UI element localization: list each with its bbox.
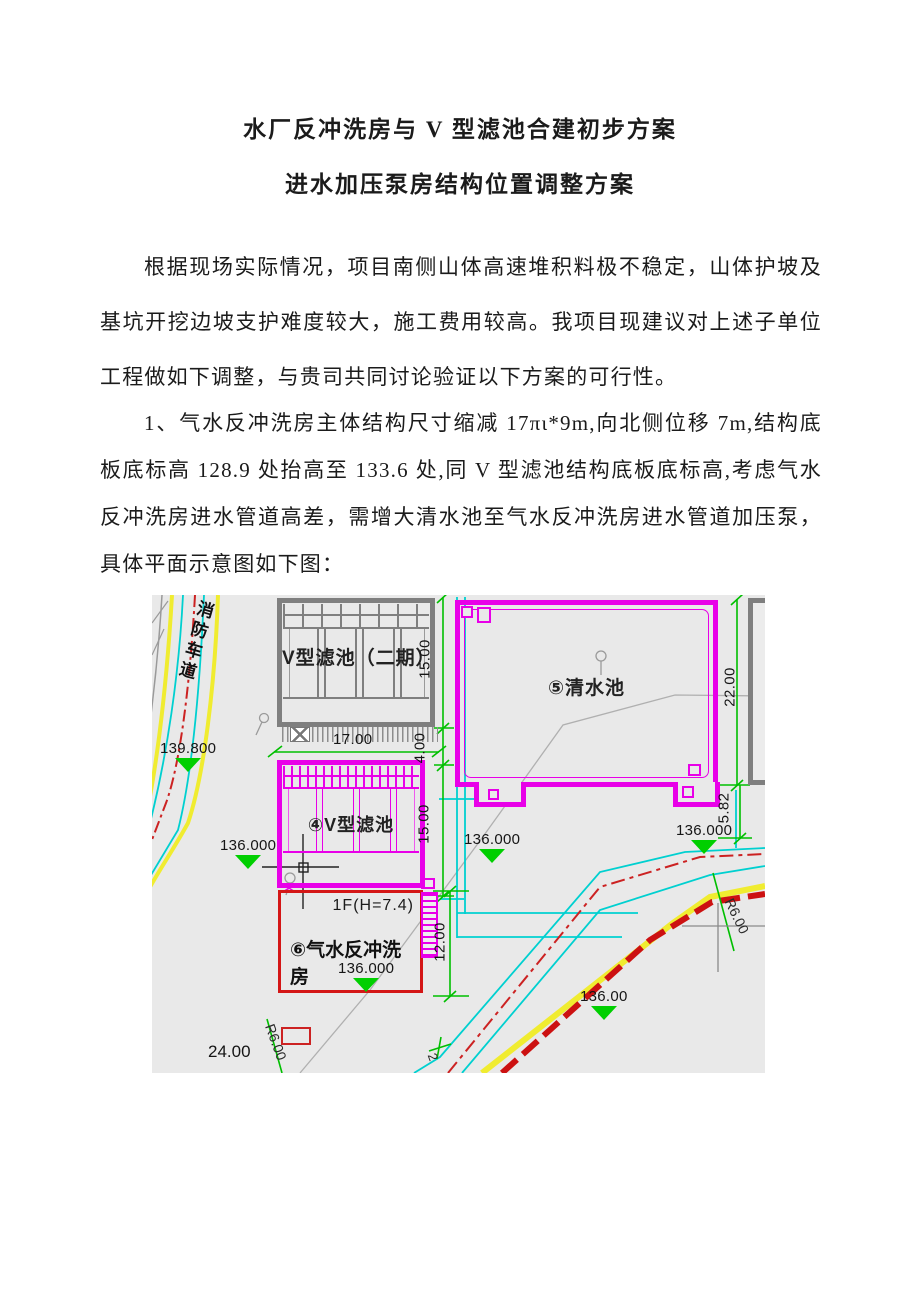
dim-22: 22.00 [722,667,739,707]
doc-title-line2: 进水加压泵房结构位置调整方案 [0,165,920,199]
document-page: 水厂反冲洗房与 V 型滤池合建初步方案 进水加压泵房结构位置调整方案 根据现场实… [0,0,920,1301]
elevation-marker-136-bottom: 136.00 [580,988,628,1020]
dim-4: 4.00 [412,733,429,764]
small-red-rect [282,1028,310,1044]
pool-corner-detail [461,606,473,618]
benchmark-triangle-icon [353,978,379,992]
vfilter-label: ④V型滤池 [282,811,420,837]
pool-corner-detail [488,789,499,800]
floor-label: 1F(H=7.4) [333,897,414,915]
benchmark-triangle-icon [479,849,505,863]
filter2-label: V型滤池（二期） [282,643,430,670]
elevation-marker-136-wash: 136.000 [338,960,394,992]
road-bottom-right [414,848,765,1073]
valve-bowtie-icon [290,727,310,742]
pool-sump-left [474,782,526,807]
filter2-top-channels [283,604,429,629]
benchmark-triangle-icon [235,855,261,869]
vfilter-top-channels [283,766,419,789]
dim-17: 17.00 [333,731,373,748]
dim-12: 12.00 [432,922,449,962]
elevation-marker-136-left: 136.000 [220,837,276,869]
building-filter-phase2: V型滤池（二期） [277,598,435,727]
benchmark-triangle-icon [691,840,717,854]
stair-landing [421,878,435,889]
paragraph-2: 1、气水反冲洗房主体结构尺寸缩减 17πι*9m,向北侧位移 7m,结构底板底标… [100,400,822,588]
paragraph-1: 根据现场实际情况，项目南侧山体高速堆积料极不稳定，山体护坡及基坑开挖边坡支护难度… [100,240,822,405]
elevation-marker-139800: 139.800 [160,740,216,772]
dim-15a: 15.00 [417,639,434,679]
pool-label: ⑤清水池 [460,673,713,700]
building-v-filter: ④V型滤池 [277,760,425,888]
site-plan-drawing: V型滤池（二期） ④V型滤池 1F(H=7.4) ⑥气水反冲洗房 [152,595,765,1073]
pool-corner-detail [477,607,491,623]
pool-sump-right [673,782,720,807]
pool-corner-detail [688,764,701,776]
elevation-marker-136-mid: 136.000 [464,831,520,863]
benchmark-triangle-icon [175,758,201,772]
doc-title-line1: 水厂反冲洗房与 V 型滤池合建初步方案 [0,110,920,144]
dim-582: 5.82 [716,793,733,824]
dim-15b: 15.00 [416,804,433,844]
benchmark-triangle-icon [591,1006,617,1020]
building-clear-water-pool: ⑤清水池 [455,600,718,787]
adjacent-structure [748,598,765,785]
pool-corner-detail [682,786,694,798]
dim-24: 24.00 [208,1042,251,1062]
elevation-marker-136-right: 136.000 [676,822,732,854]
